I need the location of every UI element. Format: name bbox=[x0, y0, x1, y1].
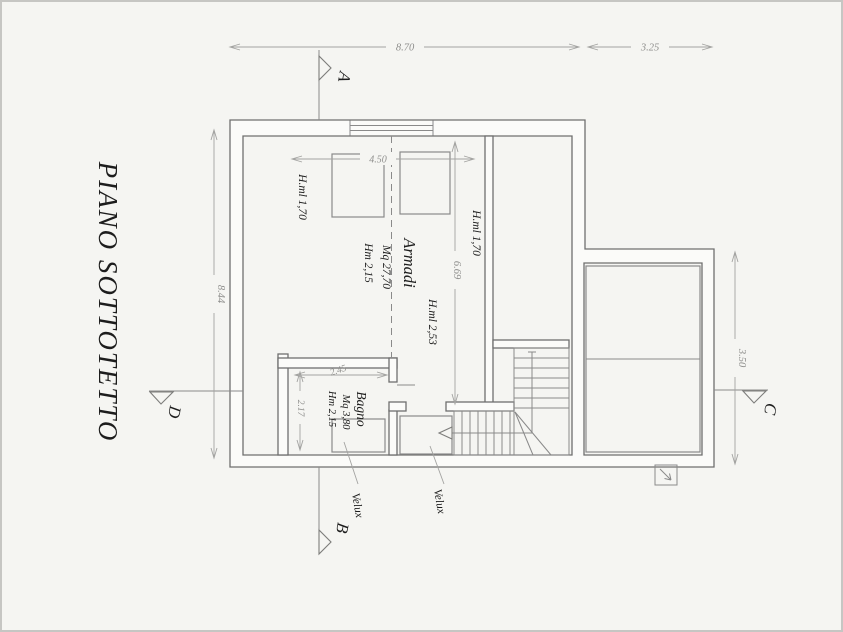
dim-armadi-width: 4.50 bbox=[369, 155, 387, 166]
section-flag-b-icon bbox=[319, 530, 331, 554]
dim-armadi-depth: 6.69 bbox=[451, 261, 462, 280]
wall-bagno-right-upper bbox=[389, 358, 397, 382]
floor-plan-drawing: PIANO SOTTOTETTO 8.70 3.25 8.44 3.50 4.5… bbox=[2, 2, 843, 632]
height-ridge: H.ml 2,53 bbox=[426, 298, 438, 345]
section-marker-b bbox=[319, 467, 331, 554]
section-marker-c bbox=[714, 390, 768, 403]
stair-treads-upper bbox=[514, 358, 569, 408]
height-eaves-left: H.ml 1,70 bbox=[296, 173, 308, 220]
page-title: PIANO SOTTOTETTO bbox=[93, 161, 123, 443]
section-letter-a: A bbox=[334, 69, 355, 84]
wall-hall-stair bbox=[446, 402, 514, 411]
wall-bagno-left bbox=[278, 354, 288, 455]
corner-arrow-symbol-icon bbox=[655, 465, 677, 485]
section-letter-b: B bbox=[332, 521, 353, 535]
floor-plan-canvas: PIANO SOTTOTETTO 8.70 3.25 8.44 3.50 4.5… bbox=[0, 0, 843, 632]
room-armadi-height: Hm 2,15 bbox=[362, 242, 374, 283]
interior-walls bbox=[278, 136, 569, 455]
dim-extension-depth: 3.50 bbox=[736, 348, 747, 368]
wall-corridor-left bbox=[485, 136, 493, 405]
velux-rect-top-right bbox=[400, 152, 450, 214]
room-armadi-area: Mq 27,70 bbox=[380, 244, 392, 289]
section-marker-a bbox=[319, 50, 331, 120]
wall-hall-stub bbox=[389, 402, 406, 411]
dim-overall-width: 8.70 bbox=[396, 43, 415, 54]
room-label-armadi: Armadi bbox=[400, 237, 419, 288]
extension-room bbox=[586, 266, 700, 452]
dimension-lines bbox=[211, 44, 738, 484]
room-bagno-height: Hm 2,15 bbox=[326, 390, 337, 427]
section-letter-c: C bbox=[760, 402, 781, 417]
wall-corridor-bottom bbox=[493, 340, 569, 348]
dim-extension-width: 3.25 bbox=[640, 43, 659, 54]
height-eaves-right: H.ml 1,70 bbox=[470, 209, 482, 256]
velux-label-1: Velux bbox=[349, 492, 365, 519]
room-bagno-area: Mq 3,80 bbox=[340, 394, 351, 431]
velux-label-2: Velux bbox=[431, 488, 447, 515]
section-marker-d bbox=[149, 391, 243, 404]
dim-bagno-depth: 2.17 bbox=[295, 400, 305, 418]
room-label-bagno: Bagno bbox=[354, 391, 369, 426]
wall-bagno-right-lower bbox=[389, 410, 397, 455]
dim-overall-depth: 8.44 bbox=[215, 285, 226, 304]
section-flag-a-icon bbox=[319, 56, 331, 80]
section-flag-d-icon bbox=[150, 392, 173, 404]
section-letter-d: D bbox=[164, 403, 185, 420]
